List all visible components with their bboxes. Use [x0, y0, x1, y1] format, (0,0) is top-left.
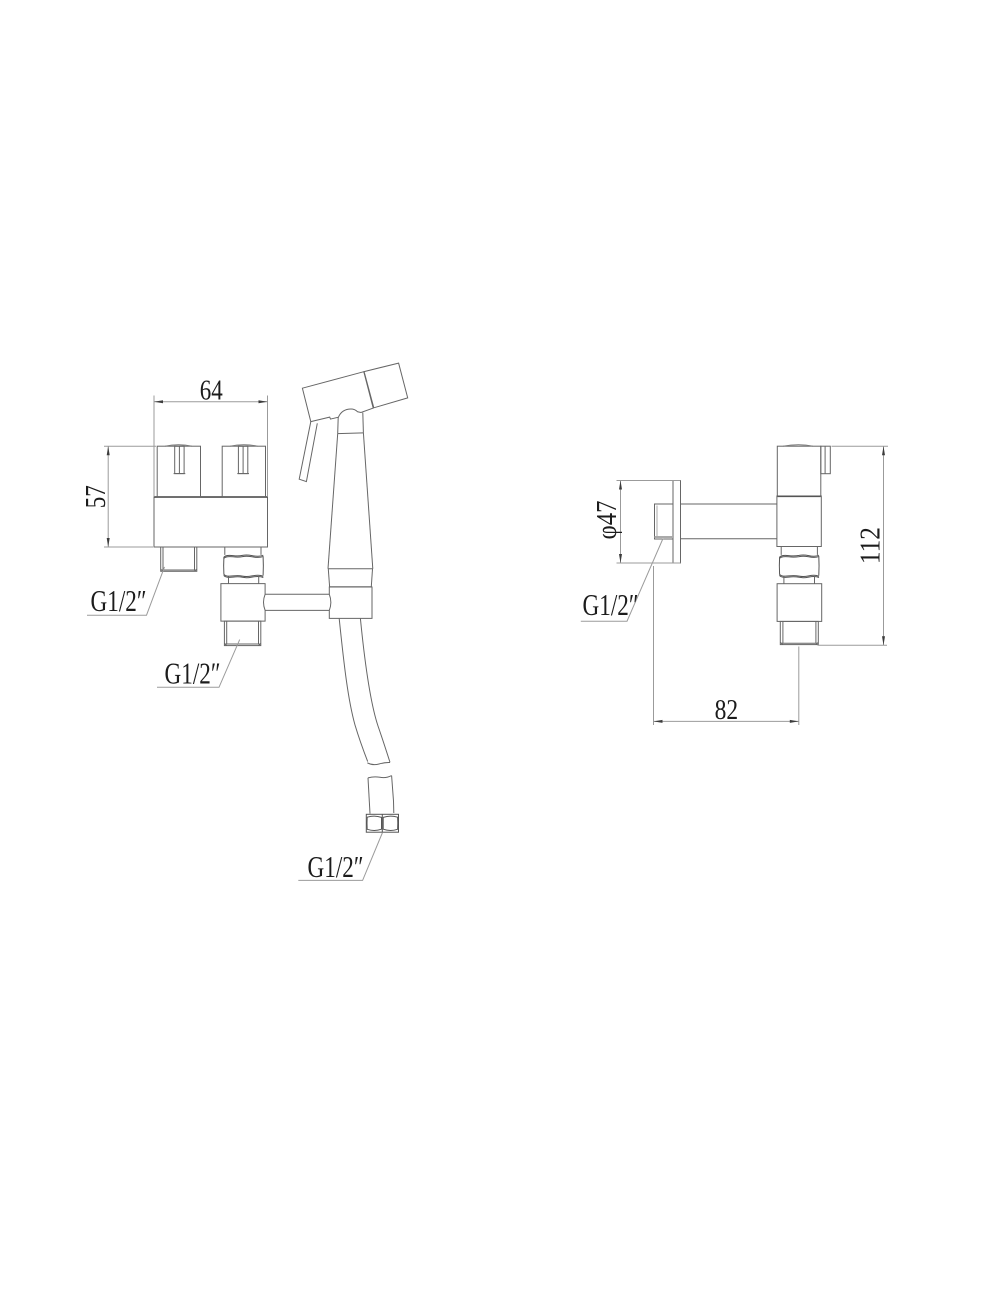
- svg-text:φ47: φ47: [592, 501, 623, 540]
- svg-text:G1/2″: G1/2″: [165, 656, 221, 691]
- svg-text:112: 112: [855, 527, 886, 564]
- svg-text:G1/2″: G1/2″: [583, 587, 639, 622]
- svg-text:82: 82: [715, 695, 739, 726]
- svg-text:G1/2″: G1/2″: [308, 849, 364, 884]
- svg-text:G1/2″: G1/2″: [91, 583, 147, 618]
- svg-text:57: 57: [81, 485, 112, 508]
- svg-text:64: 64: [200, 375, 223, 406]
